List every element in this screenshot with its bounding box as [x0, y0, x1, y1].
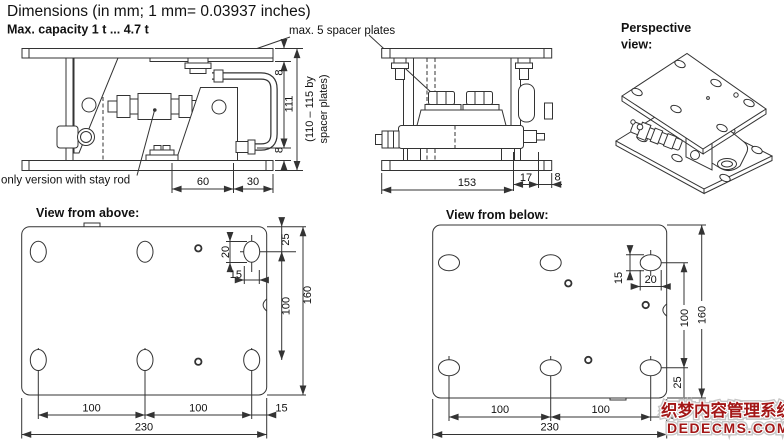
dim-height-160-top: 160	[302, 286, 314, 304]
watermark-line2: DEDECMS.COM	[667, 420, 784, 436]
front-spacer-plate	[150, 58, 273, 62]
dim-spacer-bottom: 8	[274, 147, 286, 153]
capacity-label: Max. capacity 1 t ... 4.7 t	[7, 23, 150, 37]
dim-height-111: 111	[284, 96, 296, 113]
side-top-plate	[382, 49, 552, 59]
page-title: Dimensions (in mm; 1 mm= 0.03937 inches)	[7, 3, 311, 20]
dim-230-top: 230	[135, 422, 153, 434]
stay-rod-annotation: only version with stay rod	[1, 175, 130, 187]
dim-30: 30	[247, 176, 259, 188]
watermark-line1: 织梦内容管理系统	[661, 400, 784, 420]
perspective-view-drawing	[616, 54, 772, 194]
watermark: 织梦内容管理系统 织梦内容管理系统 DEDECMS.COM DEDECMS.CO…	[661, 400, 784, 436]
dim-edge-25-top: 25	[280, 233, 292, 245]
side-load-block	[417, 110, 506, 126]
dim-17: 17	[520, 172, 532, 184]
spacer-plates-annotation: max. 5 spacer plates	[289, 25, 395, 37]
dim-edge-25-bottom: 25	[672, 376, 684, 388]
perspective-label-1: Perspective	[621, 21, 691, 35]
dim-pitch-100-top: 100	[281, 297, 293, 315]
side-bottom-plate	[382, 161, 552, 171]
dim-8-side: 8	[554, 172, 560, 184]
bottom-view-label: View from below:	[446, 208, 549, 222]
perspective-label-2: view:	[621, 38, 652, 52]
dim-slot-20-bottom: 20	[645, 274, 657, 286]
top-view-label: View from above:	[36, 206, 139, 220]
dim-230-bottom: 230	[541, 422, 559, 434]
dim-153: 153	[458, 177, 476, 189]
front-top-plate	[22, 49, 273, 59]
front-view-drawing	[22, 49, 274, 171]
side-load-cell	[399, 126, 524, 149]
front-bottom-plate	[22, 161, 273, 171]
dim-100-right-bottom: 100	[592, 404, 610, 416]
dim-60: 60	[197, 176, 209, 188]
dim-100-left-bottom: 100	[491, 404, 509, 416]
technical-drawing-page: Dimensions (in mm; 1 mm= 0.03937 inches)…	[0, 0, 784, 442]
side-view-drawing	[376, 49, 553, 171]
dim-slot-20-top: 20	[220, 246, 232, 258]
dim-100-left-top: 100	[82, 403, 100, 415]
dim-15-top: 15	[275, 403, 287, 415]
dim-slot-15-top: 15	[230, 269, 242, 281]
top-view-drawing	[22, 223, 296, 419]
dim-spacer-top: 8	[274, 69, 286, 75]
dim-slot-15-bottom: 15	[613, 272, 625, 284]
bottom-view-drawing	[433, 225, 688, 421]
dim-pitch-100-bottom: 100	[679, 309, 691, 327]
dim-100-right-top: 100	[189, 403, 207, 415]
dim-height-160-bottom: 160	[697, 306, 709, 324]
dim-range-line2: spacer plates)	[318, 74, 330, 143]
drawing-canvas: Dimensions (in mm; 1 mm= 0.03937 inches)…	[0, 0, 784, 442]
dim-range-line1: (110 – 115 by	[304, 76, 316, 142]
